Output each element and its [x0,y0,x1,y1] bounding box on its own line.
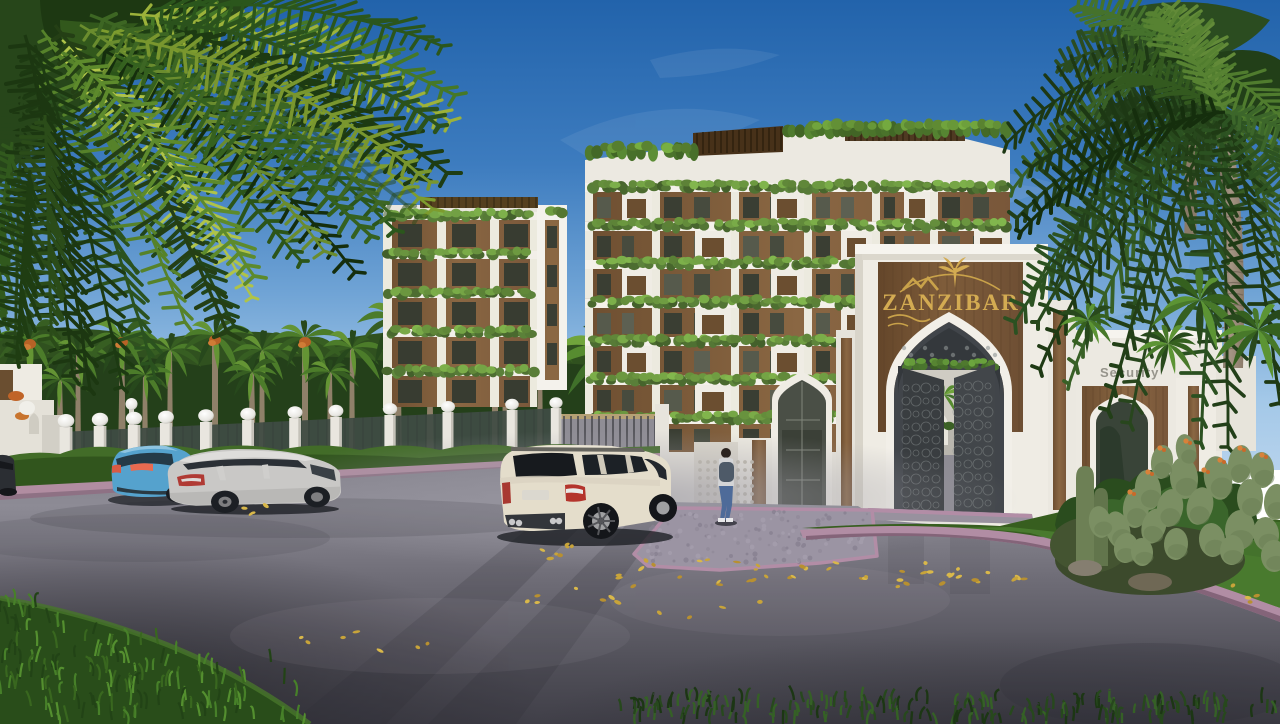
svg-text:Security: Security [1100,365,1159,380]
svg-text:ZANZIBAR: ZANZIBAR [882,290,1019,315]
